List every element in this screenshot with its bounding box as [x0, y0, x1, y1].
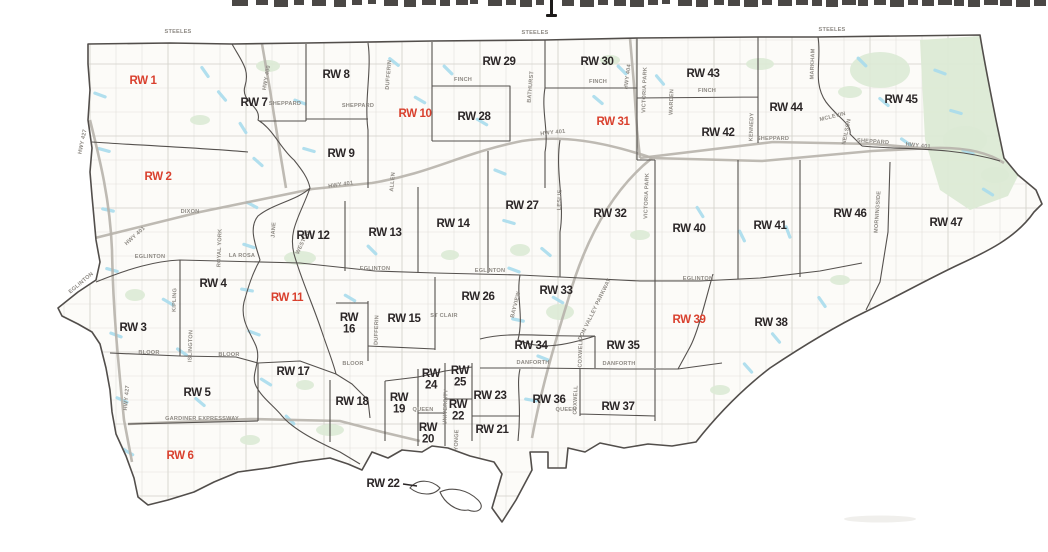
ward-label-rw-10: RW 10 — [399, 108, 432, 120]
island-shape — [440, 489, 481, 511]
title-letter-fragment — [858, 0, 868, 6]
road-label-bloor-24: BLOOR — [138, 350, 159, 356]
park-patch — [125, 289, 145, 301]
road-label-eglinton-19: EGLINTON — [360, 266, 390, 272]
ward-label-rw-36: RW 36 — [533, 394, 566, 406]
ward-label-rw-45: RW 45 — [885, 94, 919, 106]
park-patch — [746, 58, 774, 70]
ward-label-rw-1: RW 1 — [130, 75, 158, 87]
title-letter-fragment — [368, 0, 376, 4]
title-letter-fragment — [648, 0, 658, 5]
title-letter-fragment — [890, 0, 904, 7]
ward-label-rw-41: RW 41 — [754, 220, 788, 232]
title-letter-fragment — [662, 0, 670, 4]
ward-label-rw-7: RW 7 — [241, 97, 268, 109]
ward-label-rw-31: RW 31 — [597, 116, 631, 128]
road-label-sheppard-16: SHEPPARD — [757, 136, 789, 142]
ward-label-rw-46: RW 46 — [834, 208, 867, 220]
road-label-leslie-51: LESLIE — [557, 189, 564, 210]
ward-label-rw-17: RW 17 — [277, 366, 310, 378]
road-label-yonge-56: YONGE — [454, 429, 461, 450]
title-letter-fragment — [714, 0, 724, 5]
title-letter-fragment — [614, 0, 626, 6]
park-patch — [710, 385, 730, 395]
road-label-finch-11: FINCH — [454, 77, 472, 83]
title-letter-fragment — [256, 0, 268, 5]
ward-label-rw-42: RW 42 — [702, 127, 735, 139]
title-letter-fragment — [562, 0, 574, 6]
road-label-dufferin-35: DUFFERIN — [373, 315, 380, 345]
title-letter-fragment — [1016, 0, 1030, 7]
ward-label-rw-28: RW 28 — [458, 111, 492, 123]
ward-label-rw-13: RW 13 — [369, 227, 402, 239]
ward-label-rw-43: RW 43 — [687, 68, 720, 80]
title-letter-fragment — [954, 0, 964, 6]
road-label-danforth-27: DANFORTH — [517, 360, 550, 366]
ward-label-rw-35: RW 35 — [607, 340, 641, 352]
ward-label-rw-27: RW 27 — [506, 200, 539, 212]
road-label-danforth-28: DANFORTH — [603, 361, 636, 367]
ward-label-rw-38: RW 38 — [755, 317, 789, 329]
title-letter-fragment — [580, 0, 594, 7]
ward-label-rw-40: RW 40 — [673, 223, 706, 235]
ward-label-rw-32: RW 32 — [594, 208, 627, 220]
title-letter-fragment — [456, 0, 468, 5]
cursor-artifact — [546, 0, 557, 18]
ward-label-rw-47: RW 47 — [930, 217, 963, 229]
title-letter-fragment — [536, 0, 544, 5]
road-label-eglinton-21: EGLINTON — [683, 276, 713, 282]
park-patch — [441, 250, 459, 260]
road-label-dixon-32: DIXON — [181, 209, 200, 215]
ward-label-rw-5: RW 5 — [184, 387, 212, 399]
ward-label-rw-4: RW 4 — [200, 278, 228, 290]
park-patch — [981, 167, 1009, 183]
title-letter-fragment — [812, 0, 822, 6]
title-letter-fragment — [938, 0, 952, 5]
title-letter-fragment — [826, 0, 838, 7]
road-label-st-clair-23: ST CLAIR — [430, 313, 457, 319]
map-canvas: STEELESSTEELESSTEELESHWY 427HWY 427HWY 4… — [0, 0, 1048, 547]
road-label-jane-48: JANE — [270, 222, 277, 238]
ward-label-rw-29: RW 29 — [483, 56, 516, 68]
title-letter-fragment — [984, 0, 998, 5]
title-letter-fragment — [968, 0, 980, 7]
title-letter-fragment — [232, 0, 248, 6]
toronto-ward-map: STEELESSTEELESSTEELESHWY 427HWY 427HWY 4… — [0, 0, 1048, 547]
title-letter-fragment — [506, 0, 516, 5]
ward-label-rw-14: RW 14 — [437, 218, 471, 230]
title-letter-fragment — [384, 0, 398, 6]
ward-label-rw-44: RW 44 — [770, 102, 804, 114]
park-patch — [240, 435, 260, 445]
ward-label-rw-11: RW 11 — [271, 292, 304, 304]
ward-label-rw-30: RW 30 — [581, 56, 614, 68]
ward-label-rw-8: RW 8 — [323, 69, 351, 81]
road-label-eglinton-20: EGLINTON — [475, 268, 505, 274]
ward-label-rw-21: RW 21 — [476, 424, 510, 436]
road-label-kennedy-40: KENNEDY — [749, 112, 756, 141]
park-patch — [296, 380, 314, 390]
road-label-markham-41: MARKHAM — [809, 48, 816, 79]
title-letter-fragment — [796, 0, 808, 5]
title-letter-fragment — [728, 0, 740, 6]
title-letter-fragment — [422, 0, 436, 5]
ward-label-rw-6: RW 6 — [167, 450, 194, 462]
park-patch — [510, 244, 530, 256]
road-label-steeles-0: STEELES — [165, 29, 192, 35]
title-letter-fragment — [520, 0, 532, 7]
toronto-islands — [410, 481, 481, 511]
road-label-gardiner-expressway-31: GARDINER EXPRESSWAY — [165, 416, 239, 422]
road-label-bloor-26: BLOOR — [342, 361, 363, 367]
title-letter-fragment — [630, 0, 644, 7]
island-shape — [410, 481, 440, 494]
title-letter-fragment — [274, 0, 288, 7]
park-patch — [830, 275, 850, 285]
ward-label-rw-39: RW 39 — [673, 314, 706, 326]
ward-label-rw-33: RW 33 — [540, 285, 573, 297]
road-label-bloor-25: BLOOR — [218, 352, 239, 358]
title-letter-fragment — [744, 0, 758, 7]
road-label-steeles-2: STEELES — [819, 27, 846, 33]
title-letter-fragment — [294, 0, 304, 5]
title-letter-fragment — [874, 0, 886, 5]
road-label-queen-29: QUEEN — [413, 407, 434, 413]
title-letter-fragment — [1000, 0, 1012, 6]
title-letter-fragment — [488, 0, 502, 6]
road-label-hwy-427-3: HWY 427 — [77, 129, 88, 155]
title-letter-fragment — [908, 0, 918, 5]
title-letter-fragment — [404, 0, 416, 7]
road-label-coxwell-54: COXWELL — [577, 338, 584, 368]
ward-label-rw-15: RW 15 — [388, 313, 422, 325]
park-patch — [838, 86, 862, 98]
ward-label-rw-34: RW 34 — [515, 340, 549, 352]
title-letter-fragment — [1034, 0, 1046, 6]
road-label-coxwell-55: COXWELL — [572, 385, 579, 415]
road-label-finch-12: FINCH — [589, 79, 607, 85]
title-letter-fragment — [352, 0, 362, 5]
title-letter-fragment — [778, 0, 792, 6]
title-letter-fragment — [678, 0, 692, 6]
ward-label-rw-23: RW 23 — [474, 390, 507, 402]
road-label-sheppard-15: SHEPPARD — [342, 103, 374, 109]
road-label-warden-39: WARDEN — [669, 89, 676, 115]
park-patch — [630, 230, 650, 240]
title-letter-fragment — [312, 0, 326, 6]
park-patch — [190, 115, 210, 125]
cropped-page-title — [0, 0, 1048, 20]
road-label-eglinton-18: EGLINTON — [135, 254, 165, 260]
title-letter-fragment — [440, 0, 450, 6]
ward-label-rw-9: RW 9 — [328, 148, 355, 160]
ward-label-rw-3: RW 3 — [120, 322, 147, 334]
road-label-kipling-45: KIPLING — [172, 288, 179, 312]
ward-label-rw-37: RW 37 — [602, 401, 635, 413]
park-patch — [546, 304, 574, 320]
road-label-sheppard-14: SHEPPARD — [269, 101, 301, 107]
ward-label-rw-26: RW 26 — [462, 291, 495, 303]
road-label-la-rosa-33: LA ROSA — [229, 253, 255, 259]
road-label-steeles-1: STEELES — [522, 30, 549, 36]
title-letter-fragment — [762, 0, 772, 5]
ward-label-rw-22-islands: RW 22 — [367, 478, 400, 490]
title-letter-fragment — [842, 0, 856, 5]
title-letter-fragment — [922, 0, 934, 6]
title-letter-fragment — [334, 0, 346, 7]
title-letter-fragment — [696, 0, 708, 7]
road-label-finch-13: FINCH — [698, 88, 716, 94]
ward-label-rw-2: RW 2 — [145, 171, 172, 183]
title-letter-fragment — [470, 0, 478, 4]
scan-smudge — [844, 516, 916, 523]
ward-label-rw-18: RW 18 — [336, 396, 370, 408]
ward-label-rw-12: RW 12 — [297, 230, 330, 242]
road-label-islington-46: ISLINGTON — [187, 330, 194, 362]
title-letter-fragment — [598, 0, 608, 5]
